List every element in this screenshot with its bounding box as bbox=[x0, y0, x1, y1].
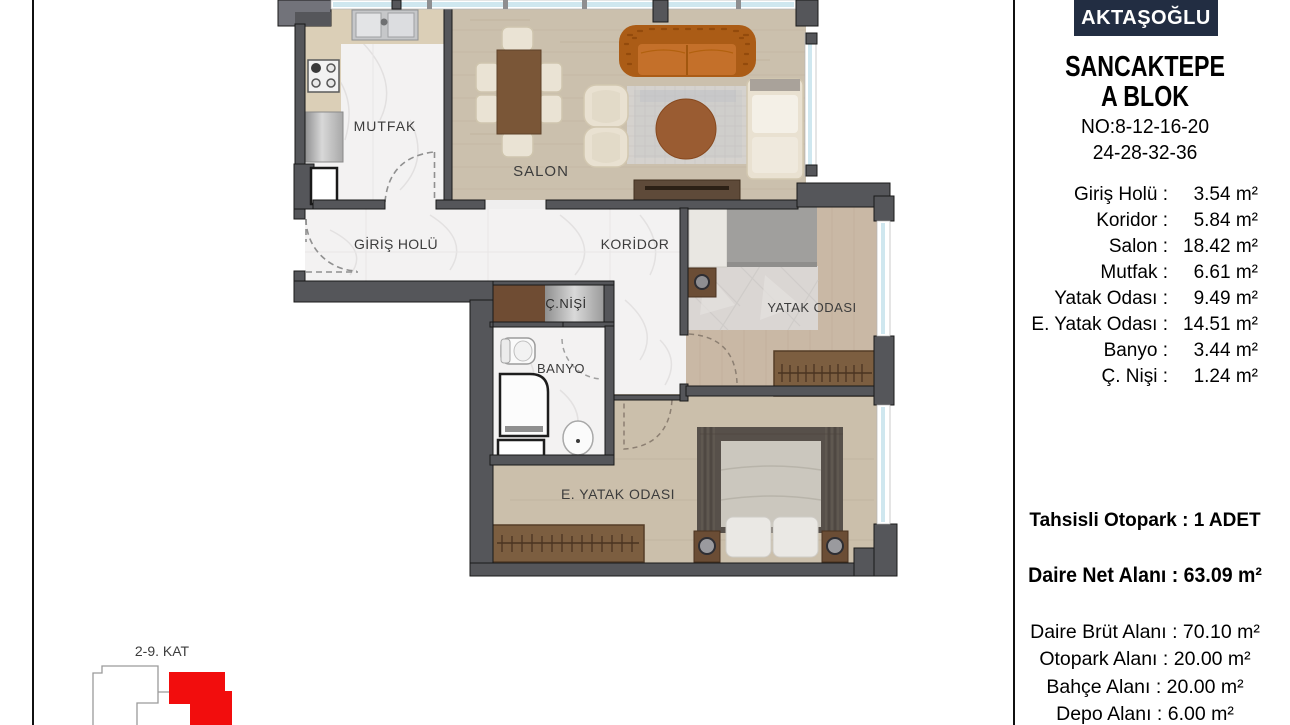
svg-text:BANYO: BANYO bbox=[537, 361, 585, 376]
svg-text:YATAK ODASI: YATAK ODASI bbox=[767, 300, 856, 315]
svg-text:MUTFAK: MUTFAK bbox=[354, 118, 417, 134]
svg-text:E. YATAK ODASI: E. YATAK ODASI bbox=[561, 486, 675, 502]
svg-text:2-9. KAT: 2-9. KAT bbox=[135, 643, 190, 659]
svg-text:KORİDOR: KORİDOR bbox=[601, 235, 670, 252]
svg-text:SALON: SALON bbox=[513, 163, 569, 180]
svg-text:GİRİŞ HOLÜ: GİRİŞ HOLÜ bbox=[354, 235, 438, 252]
svg-text:Ç.NİŞİ: Ç.NİŞİ bbox=[545, 296, 586, 311]
